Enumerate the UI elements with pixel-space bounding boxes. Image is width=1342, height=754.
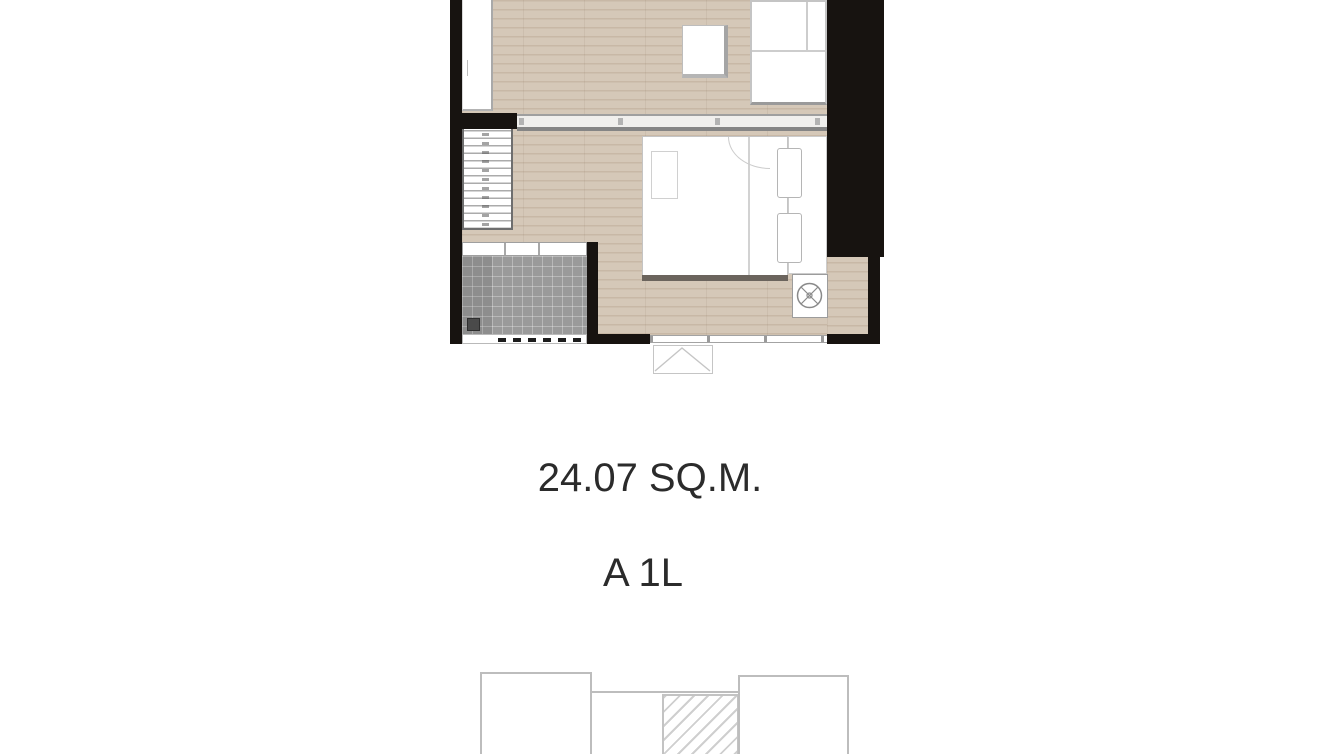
vanity-counter	[462, 242, 587, 256]
partition-tick	[519, 118, 524, 125]
sliding-partition	[517, 114, 827, 131]
bed-shadow	[642, 275, 788, 281]
wall	[827, 0, 884, 257]
building-key-plan	[465, 668, 855, 754]
pillow	[777, 148, 802, 198]
door-dashes	[498, 338, 584, 343]
pillow	[777, 213, 802, 263]
wall	[868, 252, 880, 344]
keyplan-unit-location-hatch	[662, 694, 739, 754]
wall	[827, 334, 880, 344]
table	[682, 25, 728, 78]
bathroom-tile-floor	[462, 256, 587, 334]
entrance-door	[462, 334, 587, 344]
fan-coil-unit	[792, 274, 828, 318]
wall	[450, 113, 517, 129]
bed-blanket-fold	[651, 151, 678, 199]
area-label: 24.07 SQ.M.	[450, 458, 850, 498]
kitchen-counter	[462, 0, 493, 111]
partition-tick	[715, 118, 720, 125]
unit-floor-plan	[450, 0, 884, 375]
wardrobe	[462, 122, 513, 230]
sofa	[750, 0, 827, 105]
wall	[587, 242, 598, 344]
keyplan-right-wing	[738, 675, 849, 754]
wood-floor-extension	[827, 253, 870, 335]
floor-drain	[467, 318, 480, 331]
window	[650, 335, 827, 343]
keyplan-left-wing	[480, 672, 592, 754]
bed-sheet-curve	[728, 137, 770, 169]
unit-type-label: A 1L	[448, 553, 838, 593]
wall	[598, 334, 650, 344]
condenser-unit	[653, 345, 713, 374]
partition-tick	[618, 118, 623, 125]
double-bed	[642, 136, 788, 276]
partition-tick	[815, 118, 820, 125]
wall	[450, 0, 462, 344]
floorplan-page: 24.07 SQ.M. A 1L	[0, 0, 1342, 754]
